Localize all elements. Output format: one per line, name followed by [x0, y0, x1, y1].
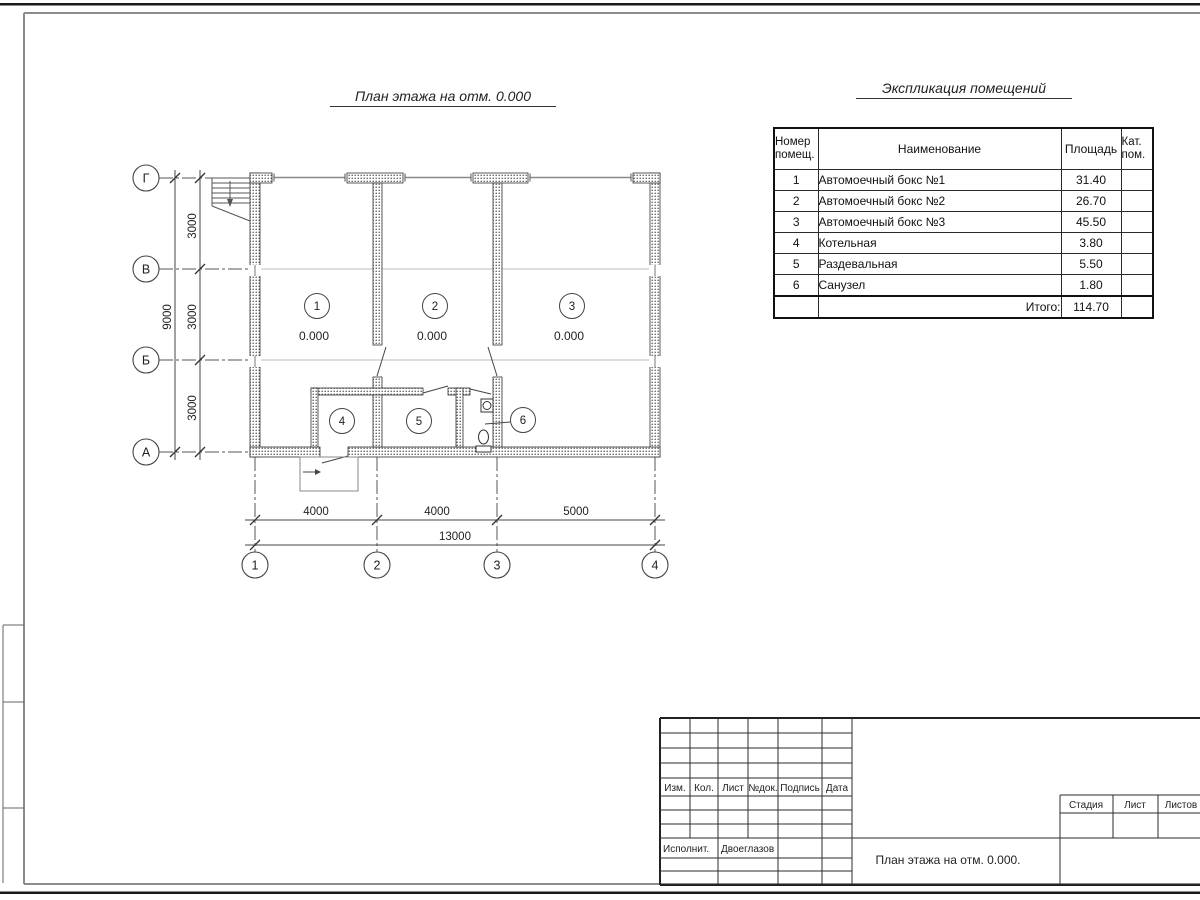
room-number-cell: 6: [774, 275, 818, 297]
door-leaves: [322, 347, 497, 463]
sink-icon: [481, 399, 493, 412]
toilet-icon: [476, 430, 491, 452]
room-area-cell: 26.70: [1061, 191, 1121, 212]
axis-bubble-label: А: [142, 446, 151, 460]
room-category-cell: [1121, 233, 1153, 254]
room-number-cell: 1: [774, 170, 818, 191]
dim-label: 9000: [162, 304, 174, 330]
room-area-cell: 3.80: [1061, 233, 1121, 254]
explication-header-row: Номер помещ. Наименование Площадь Кат. п…: [774, 128, 1153, 170]
room-number: 3: [569, 301, 575, 313]
titleblock-col-podpis: Подпись: [780, 783, 820, 794]
explication-row: 3 Автомоечный бокс №3 45.50: [774, 212, 1153, 233]
total-category-cell: [1121, 296, 1153, 318]
room-number: 5: [416, 416, 422, 428]
room-number: 1: [314, 301, 320, 313]
axis-bubble-label: 3: [494, 559, 501, 573]
dim-label: 13000: [439, 531, 471, 543]
explication-total-row: Итого: 114.70: [774, 296, 1153, 318]
titleblock-col-kol: Кол.: [694, 783, 714, 794]
titleblock-col-ndok: №док.: [748, 783, 777, 794]
title-block: Изм. Кол. Лист №док. Подпись Дата Исполн…: [660, 718, 1200, 885]
titleblock-col-data: Дата: [826, 783, 849, 794]
level-mark: 0.000: [299, 329, 329, 343]
margin-column-boxes: [3, 625, 24, 883]
dim-label: 3000: [187, 304, 199, 330]
room-marks: 1 2 3 4 5 6 0.000 0.000 0.000: [299, 294, 585, 434]
room-name-cell: Санузел: [818, 275, 1061, 297]
total-area-cell: 114.70: [1061, 296, 1121, 318]
header-number: Номер помещ.: [774, 128, 818, 170]
explication-title: Экспликация помещений: [856, 80, 1072, 99]
axis-bubble-label: 2: [374, 559, 381, 573]
explication-row: 1 Автомоечный бокс №1 31.40: [774, 170, 1153, 191]
titleblock-col-list: Лист: [722, 783, 744, 794]
explication-row: 2 Автомоечный бокс №2 26.70: [774, 191, 1153, 212]
explication-row: 5 Раздевальная 5.50: [774, 254, 1153, 275]
room-area-cell: 5.50: [1061, 254, 1121, 275]
dim-label: 5000: [563, 506, 589, 518]
titleblock-col-izm: Изм.: [664, 783, 685, 794]
dimension-ticks: [170, 173, 660, 550]
dim-label: 4000: [303, 506, 329, 518]
dim-label: 3000: [187, 395, 199, 421]
dim-label: 3000: [187, 213, 199, 239]
sheets-label: Листов: [1165, 800, 1198, 811]
explication-table: Номер помещ. Наименование Площадь Кат. п…: [773, 127, 1154, 319]
room-category-cell: [1121, 254, 1153, 275]
dim-label: 4000: [424, 506, 450, 518]
room-name-cell: Автомоечный бокс №1: [818, 170, 1061, 191]
sheet-label: Лист: [1124, 800, 1146, 811]
stage-label: Стадия: [1069, 800, 1103, 811]
room-number-cell: 4: [774, 233, 818, 254]
room-number: 2: [432, 301, 438, 313]
header-name: Наименование: [818, 128, 1061, 170]
axis-bubble-label: 1: [252, 559, 259, 573]
room-number-cell: 2: [774, 191, 818, 212]
room-category-cell: [1121, 212, 1153, 233]
total-empty-cell: [774, 296, 818, 318]
total-label-cell: Итого:: [818, 296, 1061, 318]
room-number-cell: 5: [774, 254, 818, 275]
room-name-cell: Автомоечный бокс №3: [818, 212, 1061, 233]
room-number-cell: 3: [774, 212, 818, 233]
level-mark: 0.000: [417, 329, 447, 343]
room-name-cell: Котельная: [818, 233, 1061, 254]
drawing-sheet: 3000 3000 3000 9000 4000 4000 5000 13000…: [0, 0, 1200, 900]
sanitary-fixtures: [476, 399, 493, 452]
axis-bubble-label: Г: [143, 172, 150, 186]
room-category-cell: [1121, 170, 1153, 191]
room-area-cell: 45.50: [1061, 212, 1121, 233]
explication-row: 4 Котельная 3.80: [774, 233, 1153, 254]
axis-bubble-label: В: [142, 263, 150, 277]
axis-bubble-label: 4: [652, 559, 659, 573]
header-category: Кат. пом.: [1121, 128, 1153, 170]
dimension-lines: [175, 170, 665, 545]
porch: [300, 457, 358, 491]
executor-label: Исполнит.: [663, 844, 709, 855]
room-name-cell: Автомоечный бокс №2: [818, 191, 1061, 212]
room-category-cell: [1121, 191, 1153, 212]
room-category-cell: [1121, 275, 1153, 297]
room-name-cell: Раздевальная: [818, 254, 1061, 275]
gate-openings: [274, 174, 631, 182]
doc-title: План этажа на отм. 0.000.: [875, 853, 1020, 867]
axis-bubble-label: Б: [142, 354, 150, 368]
level-mark: 0.000: [554, 329, 584, 343]
plan-title: План этажа на отм. 0.000: [330, 88, 556, 107]
room-number: 4: [339, 416, 346, 428]
executor-name: Двоеглазов: [721, 844, 774, 855]
axis-lines: [159, 178, 655, 552]
stair: [212, 178, 250, 221]
room-number: 6: [520, 415, 526, 427]
header-area: Площадь: [1061, 128, 1121, 170]
room-area-cell: 1.80: [1061, 275, 1121, 297]
room-area-cell: 31.40: [1061, 170, 1121, 191]
explication-row: 6 Санузел 1.80: [774, 275, 1153, 297]
